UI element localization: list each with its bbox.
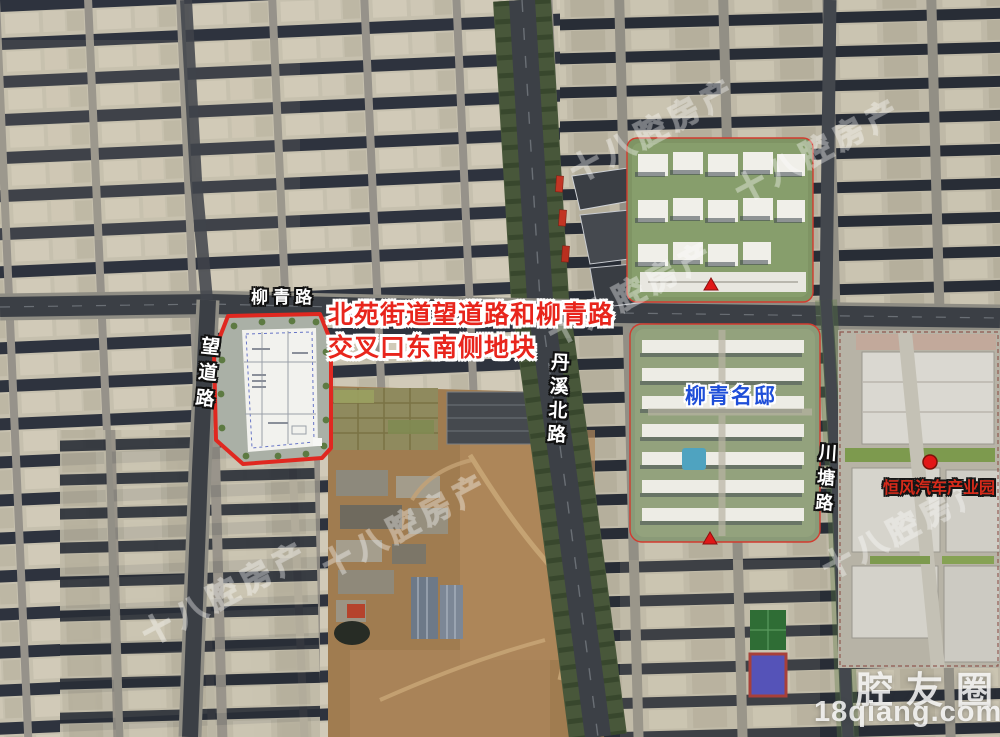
- target-plot: [214, 314, 331, 464]
- road-label-chuantang: 川塘路: [809, 442, 840, 519]
- plot-annotation: 北苑街道望道路和柳青路 交叉口东南侧地块: [328, 299, 614, 365]
- watermark-url: 18qiang.com: [814, 696, 1000, 729]
- plot-annotation-line1: 北苑街道望道路和柳青路: [328, 299, 614, 332]
- road-label-liuqing: 柳青路: [251, 283, 317, 308]
- place-label-industrial-park: 恒风汽车产业园: [883, 474, 995, 498]
- red-dot-marker: [923, 455, 937, 469]
- sports-facilities: [750, 610, 786, 696]
- satellite-map-image: 十八腔房产 十八腔房产 十八腔房产 十八腔房产 十八腔房产 十八腔房产 柳青路 …: [0, 0, 1000, 737]
- place-label-residential: 柳青名邸: [685, 380, 777, 410]
- complex-south: [630, 324, 820, 542]
- road-label-danxi-north: 丹溪北路: [541, 351, 573, 448]
- plot-annotation-line2: 交叉口东南侧地块: [328, 332, 614, 365]
